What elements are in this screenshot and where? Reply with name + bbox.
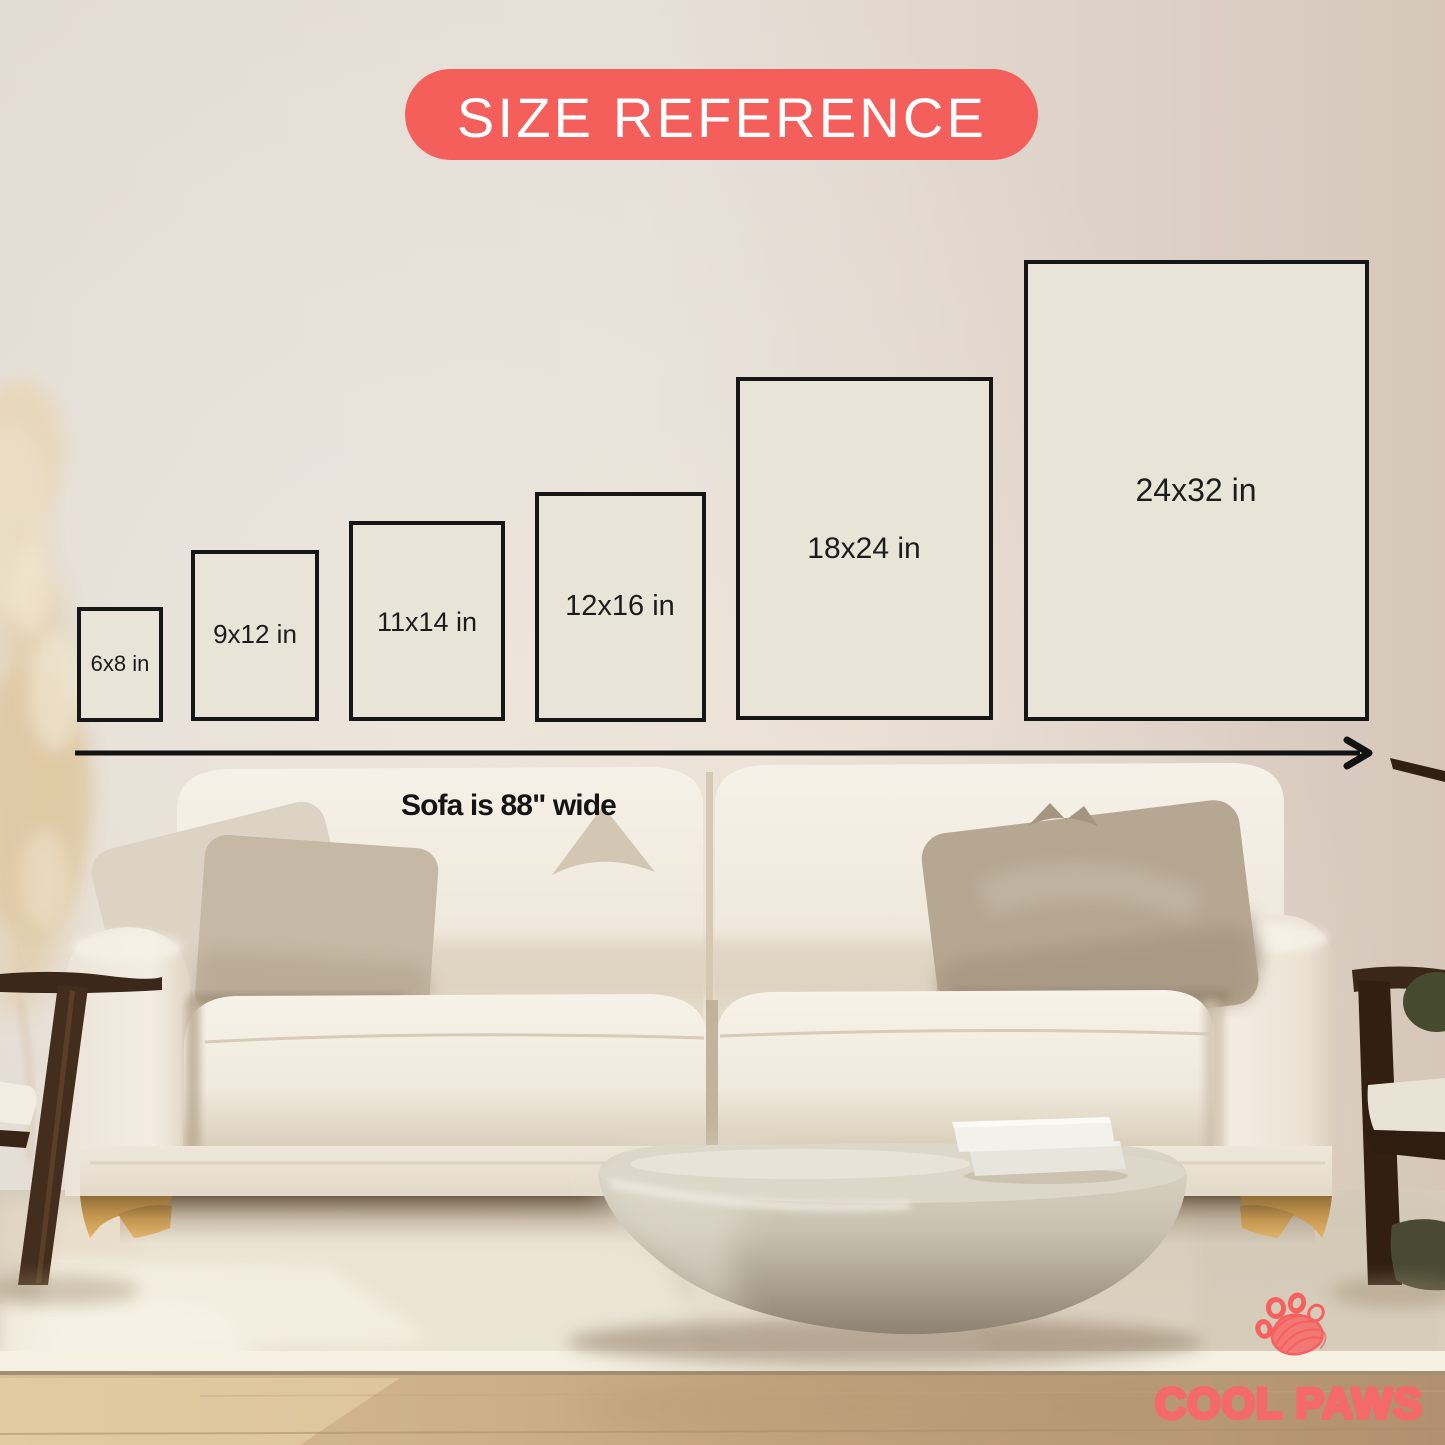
svg-text:18x24 in: 18x24 in (807, 532, 920, 565)
svg-text:24x32 in: 24x32 in (1136, 472, 1257, 508)
svg-text:11x14 in: 11x14 in (377, 607, 477, 637)
svg-text:COOL PAWS: COOL PAWS (1155, 1380, 1423, 1428)
svg-text:9x12 in: 9x12 in (213, 619, 297, 649)
svg-text:12x16 in: 12x16 in (565, 590, 675, 622)
svg-text:Sofa is 88" wide: Sofa is 88" wide (401, 789, 616, 822)
svg-text:SIZE REFERENCE: SIZE REFERENCE (457, 86, 987, 149)
svg-text:6x8 in: 6x8 in (91, 651, 150, 676)
